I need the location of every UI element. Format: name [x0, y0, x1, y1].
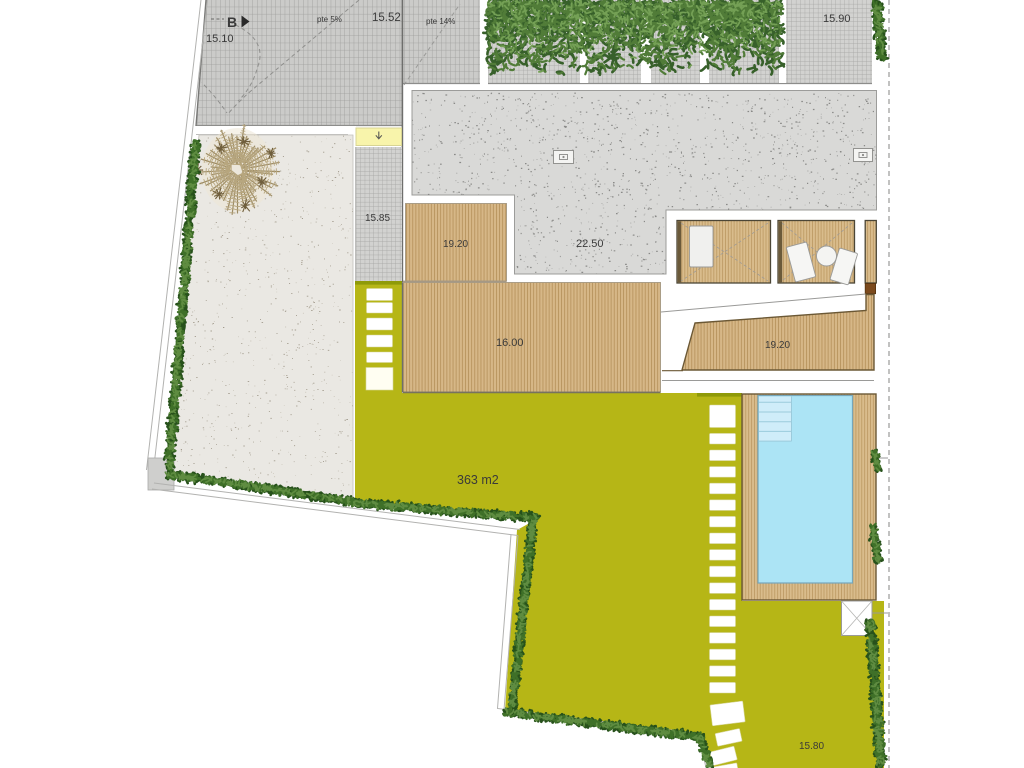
svg-text:15.90: 15.90: [823, 13, 851, 25]
svg-text:19.20: 19.20: [765, 340, 790, 351]
svg-text:363 m2: 363 m2: [457, 473, 499, 487]
svg-text:B: B: [227, 14, 237, 30]
svg-text:16.00: 16.00: [496, 337, 524, 349]
svg-text:pte 5%: pte 5%: [317, 15, 342, 24]
svg-text:15.85: 15.85: [365, 213, 390, 224]
svg-text:15.80: 15.80: [799, 741, 824, 752]
svg-text:15.52: 15.52: [372, 12, 401, 24]
svg-text:pte 14%: pte 14%: [426, 17, 455, 26]
svg-text:19.20: 19.20: [443, 239, 468, 250]
svg-text:15.10: 15.10: [206, 33, 234, 45]
svg-text:22.50: 22.50: [576, 238, 604, 250]
